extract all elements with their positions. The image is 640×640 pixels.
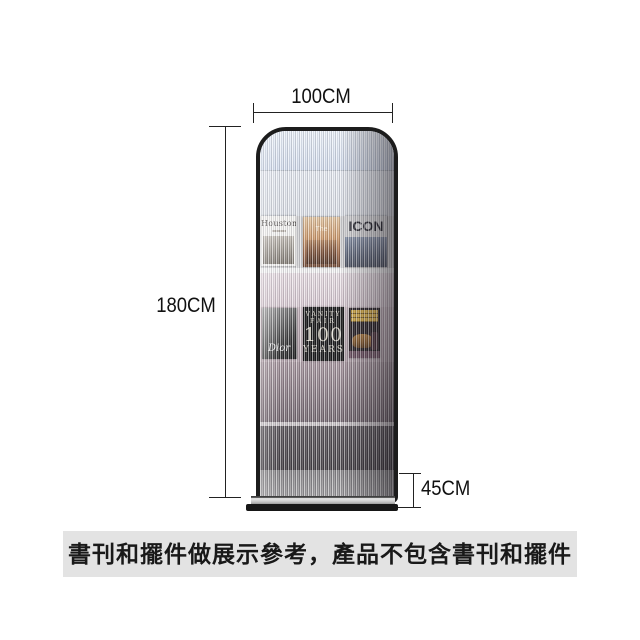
depth-dimension-label: 45CM [421, 477, 483, 501]
height-dimension-label: 180CM [142, 294, 230, 318]
shadow-vignette-overlay [260, 131, 394, 499]
product-image: 100CM 180CM 45CM Houston The ICON [0, 0, 640, 640]
rack-base-plate [246, 504, 398, 511]
width-dimension-right-tick [392, 103, 393, 123]
height-dimension-top-tick [209, 126, 241, 127]
disclaimer-caption: 書刊和擺件做展示參考，產品不包含書刊和擺件 [63, 531, 577, 577]
width-dimension-label: 100CM [268, 85, 374, 109]
width-dimension-left-tick [253, 103, 254, 123]
depth-dimension-top-tick [399, 473, 421, 474]
rack-plinth [251, 496, 395, 504]
width-dimension-line [253, 112, 393, 113]
height-dimension-bottom-tick [209, 497, 241, 498]
rack-panel: Houston The ICON Dior VANITY FAIR 100 YE… [256, 127, 398, 503]
depth-dimension-line [413, 473, 414, 507]
